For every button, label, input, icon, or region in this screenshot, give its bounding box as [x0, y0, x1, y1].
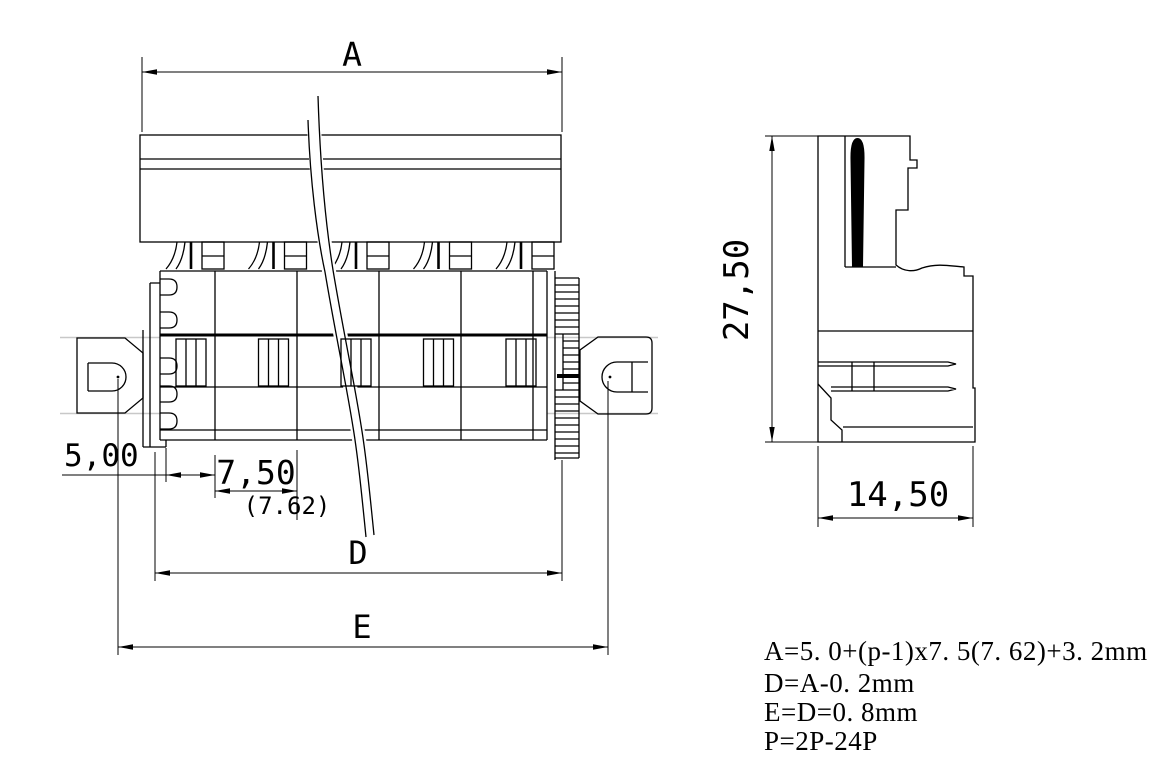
formula-notes: A=5. 0+(p-1)x7. 5(7. 62)+3. 2mm D=A-0. 2…	[764, 636, 1148, 756]
dim-e-label: E	[352, 608, 371, 646]
clamp-contact	[818, 362, 956, 391]
latch-clips	[166, 242, 554, 269]
dim-7-62-label: (7.62)	[244, 492, 331, 520]
dim-7-50-label: 7,50	[216, 453, 295, 492]
dim-a-label: A	[342, 35, 362, 74]
formula-line-4: P=2P-24P	[764, 726, 878, 756]
formula-line-1: A=5. 0+(p-1)x7. 5(7. 62)+3. 2mm	[764, 636, 1148, 666]
dim-5-00-label: 5,00	[64, 438, 139, 474]
side-foot-detail	[818, 384, 842, 442]
side-outline	[818, 136, 975, 442]
solder-pin	[850, 138, 864, 267]
front-view	[60, 96, 658, 537]
serrated-strip	[555, 271, 579, 460]
formula-line-2: D=A-0. 2mm	[764, 668, 915, 698]
break-line	[308, 96, 374, 537]
dim-d-label: D	[348, 534, 367, 572]
technical-drawing: A 5,00 7,50 (7.62) D E 27,50	[0, 0, 1157, 763]
drawing-canvas: A 5,00 7,50 (7.62) D E 27,50	[0, 0, 1157, 763]
left-mount-ear	[77, 338, 143, 413]
dim-27-50-label: 27,50	[717, 239, 757, 341]
dim-14-50-label: 14,50	[847, 475, 949, 515]
formula-line-3: E=D=0. 8mm	[764, 697, 918, 727]
cover-outline	[140, 135, 561, 242]
terminal-windows	[176, 339, 536, 386]
right-mount-ear	[580, 337, 652, 414]
side-view	[818, 136, 975, 442]
